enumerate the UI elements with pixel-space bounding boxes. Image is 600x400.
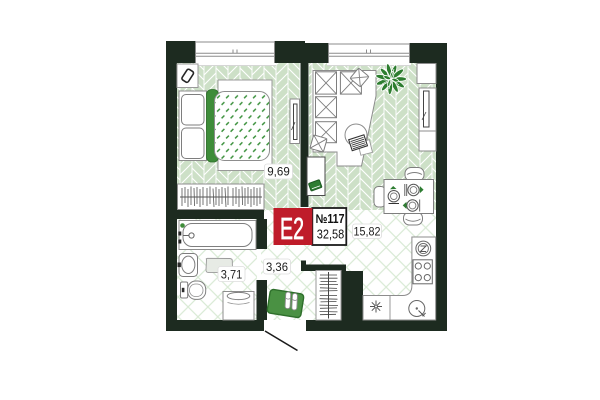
- svg-text:9,69: 9,69: [267, 164, 290, 178]
- svg-text:№117: №117: [316, 212, 345, 226]
- svg-text:3,36: 3,36: [266, 260, 288, 274]
- svg-text:E2: E2: [280, 211, 304, 246]
- svg-text:3,71: 3,71: [221, 268, 243, 282]
- svg-text:32,58: 32,58: [317, 226, 345, 241]
- svg-text:15,82: 15,82: [354, 225, 381, 239]
